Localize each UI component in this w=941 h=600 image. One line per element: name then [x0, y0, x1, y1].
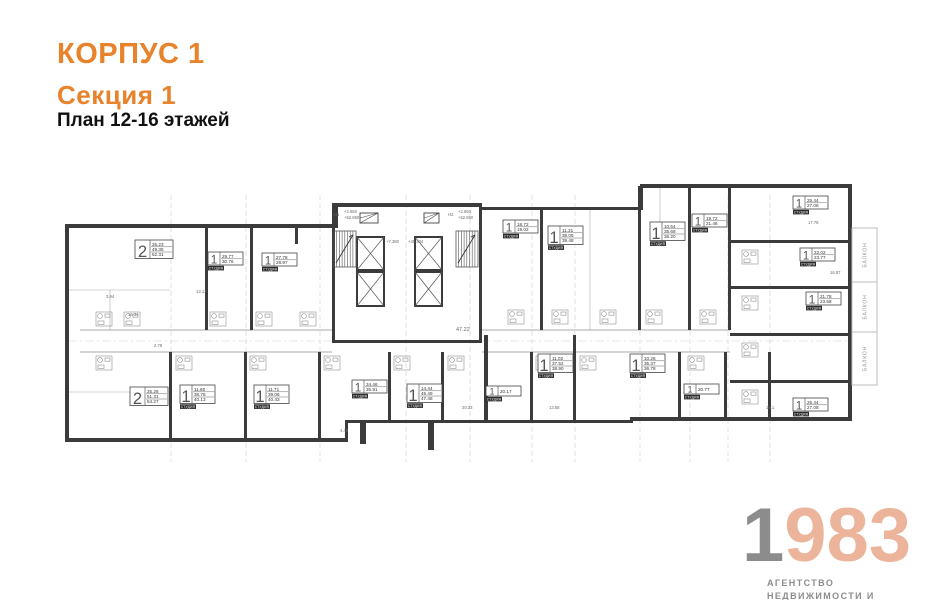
svg-text:1: 1	[211, 254, 218, 267]
svg-text:40.43: 40.43	[268, 397, 280, 402]
svg-text:27.08: 27.08	[807, 203, 819, 208]
svg-text:52.31: 52.31	[152, 252, 164, 257]
svg-text:СТУДИЯ: СТУДИЯ	[794, 210, 809, 214]
svg-text:БАЛКОН: БАЛКОН	[863, 242, 869, 267]
svg-text:СТУДИЯ: СТУДИЯ	[794, 412, 809, 416]
svg-text:СТУДИЯ: СТУДИЯ	[263, 267, 278, 271]
unit-label: 225.2349.3552.31	[135, 240, 173, 261]
svg-text:2: 2	[133, 389, 142, 408]
svg-text:1: 1	[539, 356, 548, 375]
bathroom-fixtures	[600, 310, 616, 324]
svg-text:20.77: 20.77	[698, 387, 710, 392]
svg-text:1: 1	[809, 294, 816, 307]
unit-label: 134.4635.91СТУДИЯ	[352, 380, 387, 398]
svg-text:СТУДИЯ: СТУДИЯ	[693, 228, 708, 232]
bathroom-fixtures	[700, 310, 716, 324]
dimension-text: 15.34	[128, 312, 139, 317]
svg-text:1: 1	[695, 216, 702, 229]
svg-text:20.17: 20.17	[500, 389, 512, 394]
bathroom-fixtures	[250, 356, 266, 370]
unit-label: 129.7730.76СТУДИЯ	[208, 252, 243, 270]
agency-logo: 1983 АГЕНТСТВО НЕДВИЖИМОСТИ И ИНВЕСТИЦИЙ	[742, 498, 937, 600]
svg-text:СТУДИЯ: СТУДИЯ	[255, 405, 270, 409]
bathroom-fixtures	[742, 296, 758, 310]
svg-text:СТУДИЯ: СТУДИЯ	[801, 262, 816, 266]
svg-text:1: 1	[489, 387, 494, 397]
dimension-text: +2.650	[344, 209, 358, 214]
dimension-text: +49.334	[408, 239, 424, 244]
unit-label: 111.0237.5238.90СТУДИЯ	[538, 354, 573, 378]
page: { "header": { "building": "КОРПУС 1", "s…	[0, 0, 941, 600]
bathroom-fixtures	[646, 310, 662, 324]
dimension-text: 2.78	[154, 343, 163, 348]
bathroom-fixtures	[210, 312, 226, 326]
unit-label: 125.4427.08СТУДИЯ	[793, 398, 828, 416]
svg-text:36.20: 36.20	[664, 234, 676, 239]
svg-text:27.08: 27.08	[807, 405, 819, 410]
bathroom-fixtures	[742, 250, 758, 264]
svg-text:СТУДИЯ: СТУДИЯ	[539, 374, 554, 378]
unit-label: 118.7219.02СТУДИЯ	[503, 220, 538, 238]
svg-text:1: 1	[255, 387, 264, 406]
svg-text:36.78: 36.78	[644, 366, 656, 371]
bathroom-fixtures	[552, 310, 568, 324]
unit-label: 127.7828.97СТУДИЯ	[262, 253, 297, 271]
svg-text:БАЛКОН: БАЛКОН	[863, 294, 869, 319]
svg-text:1: 1	[803, 250, 810, 263]
bathroom-fixtures	[96, 312, 112, 326]
svg-text:38.90: 38.90	[552, 366, 564, 371]
unit-label: 120.77СТУДИЯ	[684, 384, 719, 399]
svg-text:35.91: 35.91	[366, 387, 378, 392]
bathroom-fixtures	[742, 343, 758, 357]
dimension-text: 16.87	[830, 270, 841, 275]
bathroom-fixtures	[508, 310, 524, 324]
svg-text:СТУДИЯ: СТУДИЯ	[353, 394, 368, 398]
svg-text:1: 1	[631, 356, 640, 375]
dimension-text: 13.13	[196, 289, 207, 294]
staircase	[456, 231, 478, 267]
dimension-text: 47.22	[456, 327, 470, 333]
bathroom-fixtures	[448, 356, 464, 370]
dimension-text: 3.94	[106, 294, 115, 299]
dimension-text: +2.650	[458, 209, 472, 214]
svg-text:1: 1	[687, 385, 692, 395]
logo-year-gray: 1	[742, 493, 784, 578]
staircase	[334, 231, 356, 267]
unit-label: 114.4445.4947.48СТУДИЯ	[407, 384, 442, 408]
svg-text:2: 2	[138, 242, 147, 261]
bathroom-fixtures	[176, 356, 192, 370]
logo-subtitle: АГЕНТСТВО НЕДВИЖИМОСТИ И ИНВЕСТИЦИЙ	[767, 577, 937, 600]
dimension-text: 18.1	[766, 405, 775, 410]
svg-text:54.27: 54.27	[147, 399, 159, 404]
svg-text:1: 1	[506, 222, 513, 235]
unit-label: 111.6038.7540.13СТУДИЯ	[180, 385, 215, 409]
unit-label: 125.4427.08СТУДИЯ	[793, 196, 828, 214]
unit-label: 110.2635.3736.78СТУДИЯ	[630, 354, 665, 378]
logo-year: 1983	[742, 498, 937, 574]
svg-text:30.76: 30.76	[222, 259, 234, 264]
logo-year-accent: 983	[784, 493, 911, 578]
svg-text:19.02: 19.02	[517, 227, 529, 232]
svg-text:1: 1	[355, 382, 362, 395]
svg-text:СТУДИЯ: СТУДИЯ	[209, 266, 224, 270]
svg-text:1: 1	[265, 255, 272, 268]
svg-text:БАЛКОН: БАЛКОН	[863, 346, 869, 371]
svg-text:СТУДИЯ: СТУДИЯ	[408, 404, 423, 408]
unit-label: 121.7823.58СТУДИЯ	[806, 292, 841, 310]
logo-subtitle-line1: АГЕНТСТВО	[767, 577, 937, 590]
unit-label: 122.0223.77СТУДИЯ	[800, 248, 835, 266]
bathroom-fixtures	[580, 356, 596, 370]
svg-text:1: 1	[408, 386, 417, 405]
unit-label: 111.7139.0640.43СТУДИЯ	[254, 385, 289, 409]
dimension-text: +52.850	[344, 215, 360, 220]
svg-text:23.77: 23.77	[814, 255, 826, 260]
svg-text:21.46: 21.46	[706, 221, 718, 226]
balcony: БАЛКОН	[852, 332, 877, 385]
svg-text:СТУДИЯ: СТУДИЯ	[504, 234, 519, 238]
bathroom-fixtures	[742, 390, 758, 404]
svg-text:40.13: 40.13	[194, 397, 206, 402]
balcony: БАЛКОН	[852, 228, 877, 282]
dimension-text: Н2	[448, 212, 454, 217]
unit-label: 120.17СТУДИЯ	[486, 386, 521, 401]
svg-text:23.58: 23.58	[820, 299, 832, 304]
svg-text:СТУДИЯ: СТУДИЯ	[651, 242, 666, 246]
dimension-text: +7.380	[386, 239, 400, 244]
svg-text:СТУДИЯ: СТУДИЯ	[631, 374, 646, 378]
unit-label: 225.2651.3154.27	[130, 387, 168, 408]
dimension-text: 13.58	[549, 405, 560, 410]
svg-text:СТУДИЯ: СТУДИЯ	[685, 395, 700, 399]
svg-text:СТУДИЯ: СТУДИЯ	[487, 397, 502, 401]
svg-text:1: 1	[796, 400, 803, 413]
svg-text:28.97: 28.97	[276, 260, 288, 265]
svg-text:1: 1	[651, 224, 660, 243]
bathroom-fixtures	[256, 312, 272, 326]
unit-label: 110.5435.6836.20СТУДИЯ	[650, 222, 685, 246]
bathroom-fixtures	[324, 356, 340, 370]
svg-text:1: 1	[181, 387, 190, 406]
svg-text:СТУДИЯ: СТУДИЯ	[181, 405, 196, 409]
bathroom-fixtures	[394, 356, 410, 370]
dimension-text: 17.78	[808, 220, 819, 225]
dimension-text: +52.850	[458, 215, 474, 220]
dimension-text: Н1	[334, 212, 340, 217]
svg-text:47.48: 47.48	[421, 396, 433, 401]
logo-subtitle-line2: НЕДВИЖИМОСТИ И ИНВЕСТИЦИЙ	[767, 590, 937, 600]
svg-text:1: 1	[549, 228, 558, 247]
bathroom-fixtures	[96, 356, 112, 370]
dimension-text: 20.33	[462, 405, 473, 410]
svg-text:1: 1	[796, 198, 803, 211]
unit-label: 119.7221.46СТУДИЯ	[692, 214, 727, 232]
svg-text:СТУДИЯ: СТУДИЯ	[807, 306, 822, 310]
balcony: БАЛКОН	[852, 282, 877, 332]
svg-text:СТУДИЯ: СТУДИЯ	[549, 246, 564, 250]
bathroom-fixtures	[300, 312, 316, 326]
svg-text:39.48: 39.48	[562, 238, 574, 243]
bathroom-fixtures	[688, 356, 704, 370]
unit-label: 111.3138.0539.48СТУДИЯ	[548, 226, 583, 250]
dimension-text: 4.45	[340, 428, 349, 433]
